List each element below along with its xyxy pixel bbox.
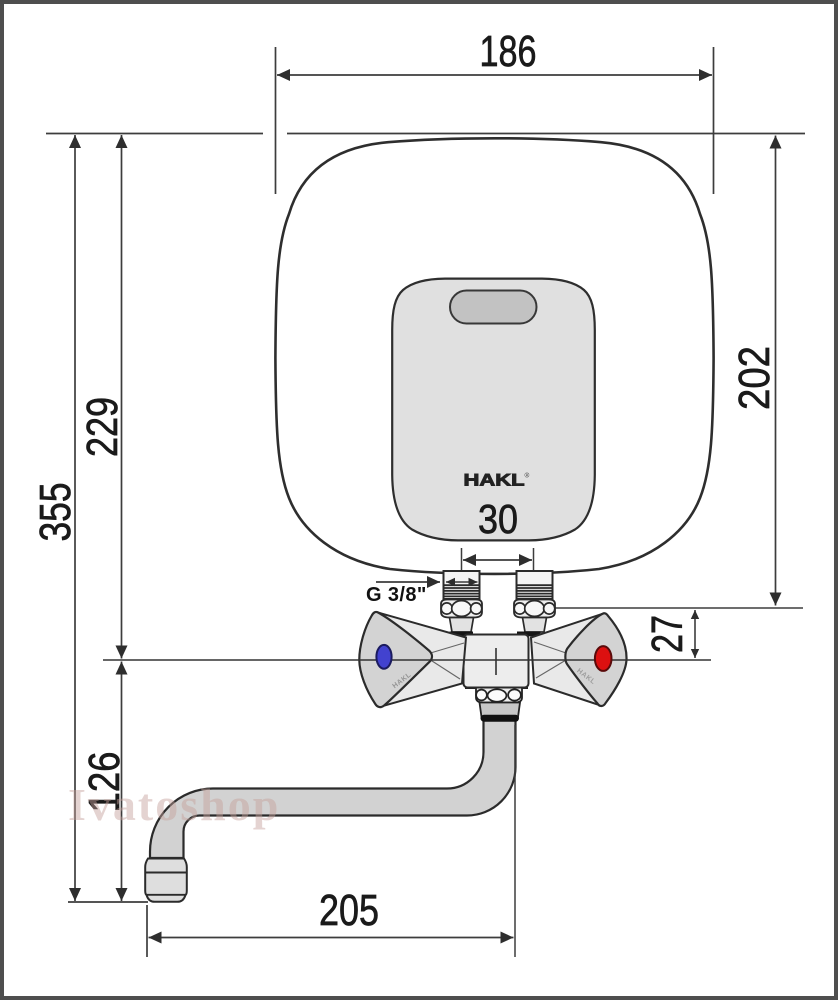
svg-text:202: 202 — [730, 346, 779, 410]
svg-text:229: 229 — [78, 397, 127, 457]
svg-text:205: 205 — [319, 886, 379, 935]
svg-text:G 3/8": G 3/8" — [366, 584, 427, 606]
svg-text:27: 27 — [643, 615, 692, 653]
svg-text:Ivatoshop: Ivatoshop — [68, 779, 280, 830]
svg-text:HAKL: HAKL — [464, 472, 525, 490]
svg-text:186: 186 — [480, 27, 537, 76]
svg-text:®: ® — [525, 472, 530, 480]
svg-text:30: 30 — [478, 496, 518, 542]
svg-text:355: 355 — [31, 483, 80, 542]
